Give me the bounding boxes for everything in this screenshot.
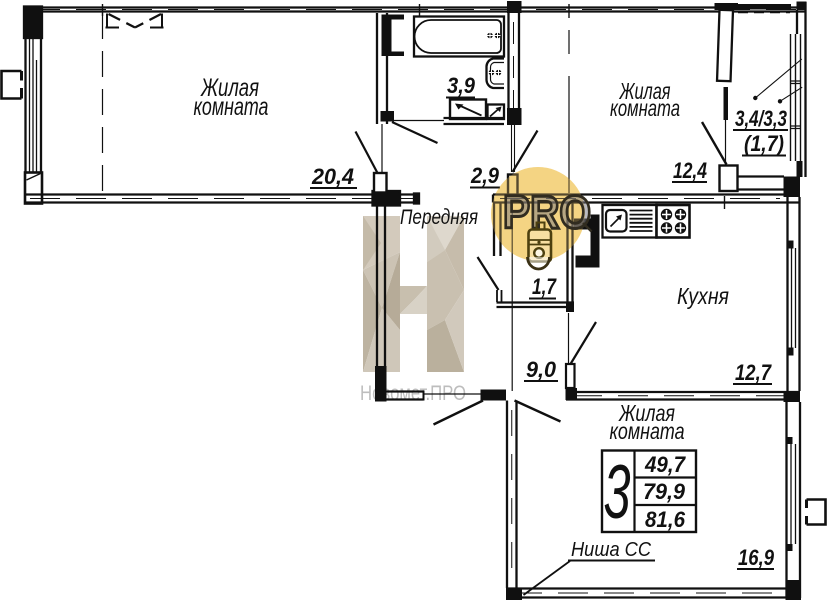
svg-text:3: 3 [604,450,631,535]
svg-text:3,4/3,3: 3,4/3,3 [735,106,787,131]
svg-text:9,0: 9,0 [526,357,557,382]
svg-text:16,9: 16,9 [738,545,775,570]
svg-text:79,9: 79,9 [643,479,686,504]
svg-text:81,6: 81,6 [645,507,686,532]
svg-text:2,9: 2,9 [470,163,500,188]
svg-text:Ниша СС: Ниша СС [571,539,652,561]
svg-text:Передняя: Передняя [400,206,478,229]
svg-text:49,7: 49,7 [644,452,687,477]
svg-text:1,7: 1,7 [532,274,557,299]
svg-text:20,4: 20,4 [311,164,354,189]
svg-text:комната: комната [194,93,269,121]
svg-text:12,7: 12,7 [735,360,772,385]
svg-text:(1,7): (1,7) [744,131,784,156]
svg-text:Кухня: Кухня [677,283,729,309]
svg-text:комната: комната [610,95,680,121]
svg-text:3,9: 3,9 [447,73,476,98]
svg-text:12,4: 12,4 [673,158,707,183]
svg-text:комната: комната [610,418,685,444]
